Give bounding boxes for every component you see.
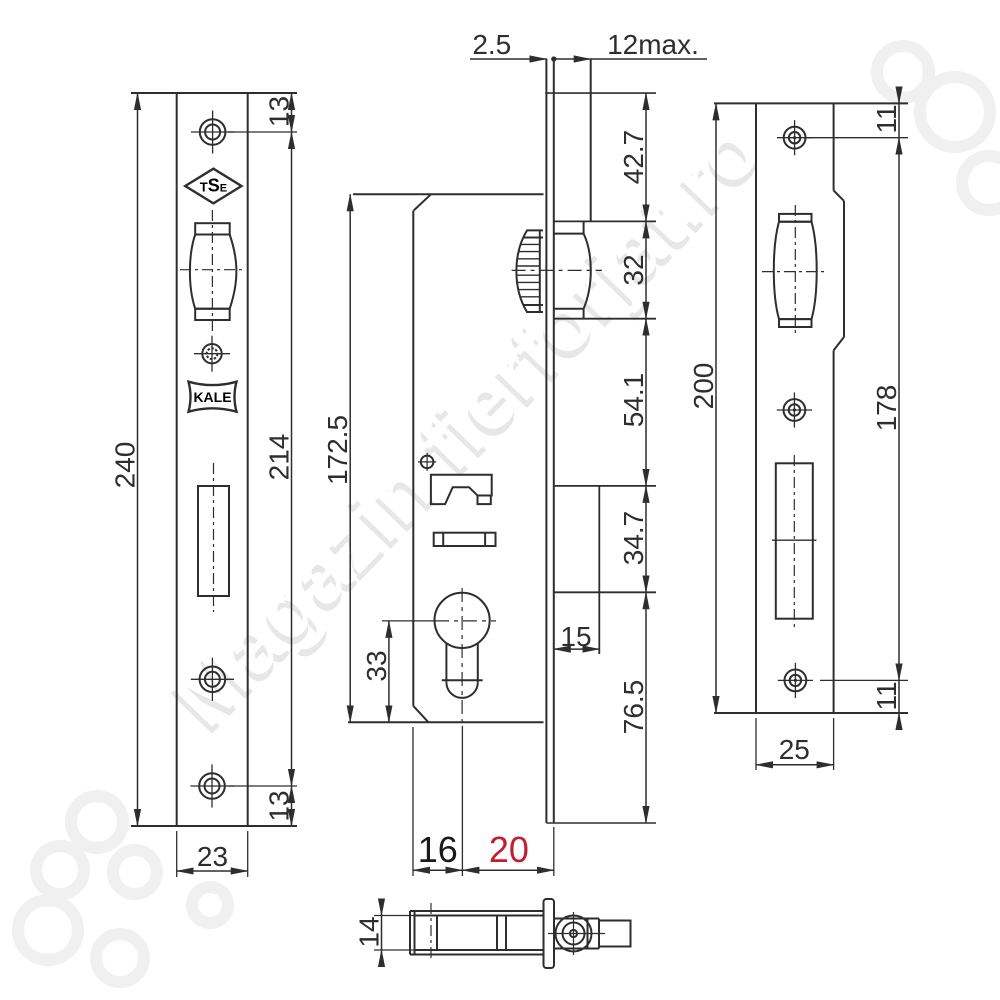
svg-text:54.1: 54.1	[618, 373, 649, 428]
svg-text:13: 13	[264, 96, 295, 127]
svg-text:240: 240	[110, 442, 141, 489]
svg-text:11: 11	[871, 104, 902, 133]
svg-text:33: 33	[361, 650, 392, 681]
svg-text:32: 32	[618, 254, 649, 285]
svg-text:34.7: 34.7	[618, 511, 649, 566]
svg-text:15: 15	[560, 621, 591, 652]
svg-text:12max.: 12max.	[607, 29, 699, 60]
svg-text:2.5: 2.5	[472, 29, 511, 60]
svg-text:178: 178	[871, 385, 902, 432]
svg-text:20: 20	[489, 829, 529, 870]
svg-text:TSE: TSE	[200, 176, 227, 196]
svg-text:11: 11	[871, 681, 902, 710]
svg-text:23: 23	[197, 841, 228, 872]
svg-text:14: 14	[354, 916, 385, 947]
svg-text:76.5: 76.5	[618, 680, 649, 735]
svg-text:172.5: 172.5	[322, 415, 353, 485]
svg-text:214: 214	[264, 434, 295, 481]
svg-text:KALE: KALE	[193, 389, 231, 405]
svg-text:13: 13	[264, 790, 295, 821]
svg-text:16: 16	[418, 829, 458, 870]
svg-text:42.7: 42.7	[618, 130, 649, 185]
svg-text:200: 200	[688, 363, 719, 410]
svg-text:25: 25	[779, 734, 810, 765]
